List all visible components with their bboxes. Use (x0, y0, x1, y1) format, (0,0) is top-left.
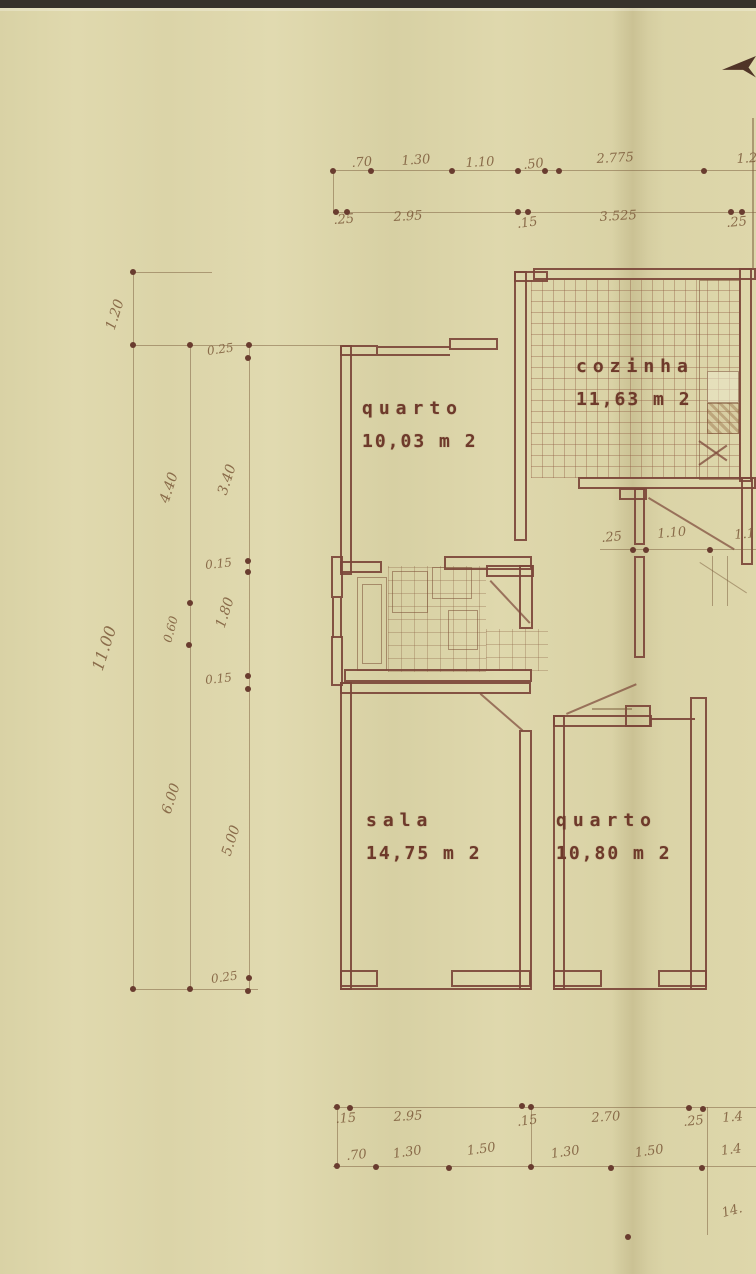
dimension-label: 1.80 (213, 595, 238, 630)
dimension-dot (608, 1165, 614, 1171)
wall-segment (331, 556, 343, 598)
dimension-label: 1.50 (634, 1142, 665, 1161)
wall-segment (451, 970, 531, 987)
wall-segment (553, 970, 602, 987)
room-area: 10,03 m 2 (362, 431, 478, 452)
dimension-line (600, 549, 756, 550)
dimension-dot (643, 547, 649, 553)
bathtub-inner-line (362, 584, 382, 664)
dimension-label: .25 (726, 214, 748, 231)
dimension-dot (130, 986, 136, 992)
window-line (378, 346, 450, 348)
dimension-label: .15 (516, 1112, 539, 1130)
dimension-dot (245, 355, 251, 361)
dimension-dot (330, 168, 336, 174)
dimension-dot (245, 673, 251, 679)
wall-segment (533, 268, 756, 280)
door-swing-line (648, 497, 735, 550)
dimension-label: 2.70 (591, 1109, 621, 1126)
wall-segment (690, 697, 707, 990)
dimension-dot (245, 686, 251, 692)
dimension-label: 11.00 (88, 624, 120, 673)
dimension-dot (556, 168, 562, 174)
dimension-label: 2.95 (393, 1109, 423, 1125)
dimension-dot (728, 209, 734, 215)
dimension-dot (245, 569, 251, 575)
dimension-dot (246, 975, 252, 981)
room-name: quarto (556, 810, 672, 831)
dimension-dot (130, 342, 136, 348)
dimension-label: 1.4 (722, 1109, 744, 1126)
pencil-line (752, 118, 754, 268)
dimension-dot (525, 209, 531, 215)
dimension-dot (515, 209, 521, 215)
dimension-label: 1.2 (736, 151, 756, 167)
dimension-dot (245, 558, 251, 564)
dimension-dot (334, 1163, 340, 1169)
dimension-label: 0.15 (205, 670, 233, 687)
bath-fixture (392, 571, 428, 613)
dimension-dot (701, 168, 707, 174)
dimension-dot (344, 209, 350, 215)
dimension-dot (528, 1104, 534, 1110)
wall-segment (449, 338, 498, 350)
scanned-floor-plan-page: { "palette":{"paper":"#dcd5aa","wall_ink… (0, 0, 756, 1274)
room-name: sala (366, 810, 482, 831)
dimension-dot (347, 1105, 353, 1111)
dimension-line (130, 989, 258, 990)
dimension-line (133, 272, 134, 989)
dimension-dot (187, 342, 193, 348)
wall-segment (340, 345, 352, 575)
dimension-line (130, 272, 212, 273)
door-swing-line (480, 693, 524, 731)
dimension-label: 1.30 (392, 1143, 423, 1162)
sink-fixture (707, 371, 739, 403)
dimension-dot (519, 1103, 525, 1109)
dimension-line (333, 1107, 756, 1108)
wall-segment (741, 477, 753, 565)
dimension-dot (542, 168, 548, 174)
floor-plan: quarto10,03 m 2cozinha11,63 m 2sala14,75… (0, 0, 756, 1274)
wall-segment (340, 561, 382, 573)
dimension-label: 2.95 (393, 209, 423, 225)
dimension-line (333, 170, 334, 213)
bath-fixture (448, 610, 478, 650)
dimension-dot (186, 642, 192, 648)
dimension-label: .70 (345, 1147, 367, 1164)
wall-segment (340, 682, 352, 990)
wall-segment (331, 636, 343, 686)
dimension-line (707, 1107, 708, 1235)
room-area: 10,80 m 2 (556, 843, 672, 864)
dimension-dot (187, 600, 193, 606)
stair-line (699, 562, 747, 593)
dimension-label: 1.30 (550, 1143, 581, 1162)
dimension-label: 0.25 (206, 340, 234, 358)
wall-segment (340, 682, 531, 694)
wall-line (651, 718, 695, 720)
dimension-line (333, 1166, 756, 1167)
dimension-dot (686, 1105, 692, 1111)
dimension-label: 1.30 (401, 152, 431, 169)
dimension-dot (334, 1104, 340, 1110)
dimension-dot (246, 342, 252, 348)
wall-segment (634, 556, 645, 658)
dimension-label: 0.15 (205, 555, 233, 572)
dimension-label: 2.775 (596, 150, 634, 167)
dimension-dot (245, 988, 251, 994)
dimension-label: .25 (601, 529, 623, 546)
window-line (340, 598, 342, 638)
room-area: 11,63 m 2 (576, 389, 694, 410)
wall-segment (519, 730, 532, 990)
wall-segment (578, 477, 756, 489)
wall-segment (340, 970, 378, 987)
dimension-label: 1.10 (657, 525, 687, 542)
dimension-label: 3.40 (215, 462, 240, 497)
wall-segment (514, 271, 527, 541)
dimension-line (130, 345, 342, 346)
wall-segment (739, 268, 752, 482)
tile-grid-bathroom (486, 629, 548, 671)
dimension-label: .15 (335, 1111, 357, 1127)
dimension-label: 3.525 (599, 208, 637, 225)
room-label-quarto-2: quarto10,80 m 2 (556, 810, 672, 864)
pencil-line (592, 708, 632, 710)
stair-line (712, 556, 713, 606)
dimension-dot (699, 1165, 705, 1171)
wall-segment (340, 345, 378, 356)
dimension-dot (449, 168, 455, 174)
dimension-dot (187, 986, 193, 992)
bath-fixture (432, 567, 472, 599)
dimension-dot (333, 209, 339, 215)
dimension-label: 4.40 (157, 470, 182, 505)
dimension-dot (373, 1164, 379, 1170)
window-line (332, 598, 334, 638)
dimension-dot (739, 209, 745, 215)
dimension-line (190, 345, 191, 989)
wall-segment (658, 970, 707, 987)
sink-fixture-hatched (707, 403, 739, 434)
dimension-dot (515, 168, 521, 174)
room-label-sala: sala14,75 m 2 (366, 810, 482, 864)
dimension-dot (446, 1165, 452, 1171)
dimension-line (249, 345, 250, 989)
dimension-label: 1.4 (720, 1141, 743, 1159)
dimension-dot (625, 1234, 631, 1240)
room-name: cozinha (576, 356, 694, 377)
dimension-label: .25 (682, 1113, 704, 1130)
dimension-dot (368, 168, 374, 174)
dimension-label: 14. (720, 1201, 744, 1221)
wall-line (340, 988, 531, 990)
room-label-quarto-1: quarto10,03 m 2 (362, 398, 478, 452)
dimension-label: .15 (516, 214, 539, 232)
dimension-label: 1.1 (734, 526, 756, 543)
dimension-label: 0.60 (160, 615, 180, 644)
dimension-label: 6.00 (159, 781, 184, 816)
room-label-cozinha: cozinha11,63 m 2 (576, 356, 694, 410)
dimension-label: 1.10 (465, 155, 495, 171)
dimension-dot (707, 547, 713, 553)
wall-segment (634, 488, 645, 545)
wall-line (553, 988, 706, 990)
room-name: quarto (362, 398, 478, 419)
dimension-label: 1.20 (103, 297, 128, 332)
dimension-label: 5.00 (219, 823, 244, 858)
wall-segment (344, 669, 532, 682)
window-line (378, 354, 450, 356)
dimension-label: 1.50 (466, 1140, 497, 1159)
dimension-dot (130, 269, 136, 275)
dimension-dot (630, 547, 636, 553)
room-area: 14,75 m 2 (366, 843, 482, 864)
dimension-dot (528, 1164, 534, 1170)
dimension-dot (700, 1106, 706, 1112)
dimension-label: 0.25 (210, 968, 238, 986)
